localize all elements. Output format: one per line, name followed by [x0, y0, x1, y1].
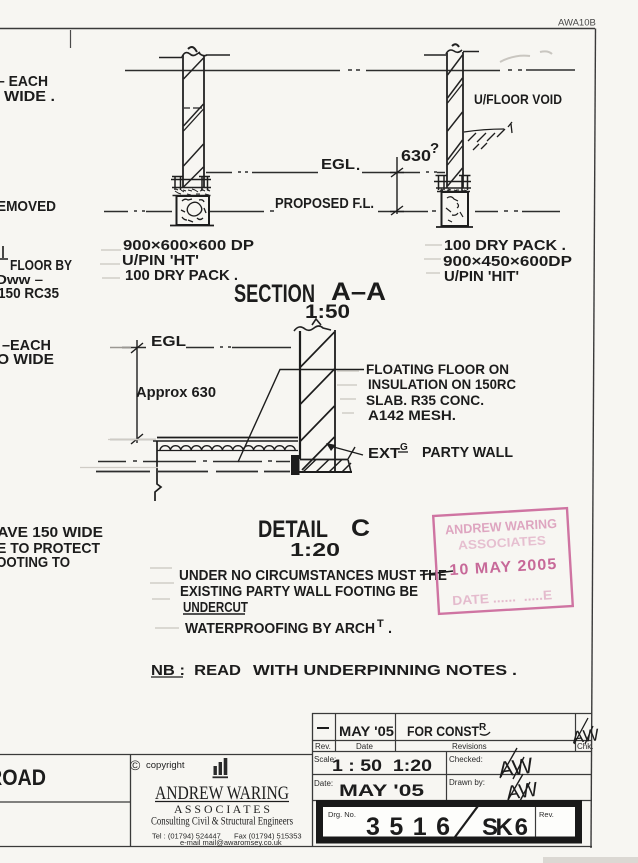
svg-text:R: R: [479, 722, 487, 733]
svg-text:O WIDE: O WIDE: [0, 351, 54, 368]
svg-text:U/PIN 'HIT': U/PIN 'HIT': [444, 268, 519, 285]
svg-text:100 DRY PACK .: 100 DRY PACK .: [444, 237, 566, 254]
svg-text:FOOTING TO: FOOTING TO: [0, 554, 70, 571]
svg-text:EXT: EXT: [368, 445, 400, 462]
svg-text:.: .: [388, 621, 392, 637]
svg-text:Revisions: Revisions: [452, 742, 487, 751]
svg-text:EMOVED: EMOVED: [0, 198, 56, 215]
svg-text:EXISTING PARTY WALL FOOTING BE: EXISTING PARTY WALL FOOTING BE: [180, 584, 418, 600]
svg-text:copyright: copyright: [146, 760, 185, 771]
svg-text:INSULATION ON 150RC: INSULATION ON 150RC: [368, 376, 516, 392]
svg-text:UNDER NO CIRCUMSTANCES MUST TH: UNDER NO CIRCUMSTANCES MUST THE: [179, 568, 447, 584]
svg-text:C: C: [351, 515, 370, 542]
svg-text:AW: AW: [497, 753, 535, 783]
svg-text:Chk.: Chk.: [577, 742, 593, 751]
svg-text:Consulting Civil & Structural: Consulting Civil & Structural Engineers: [151, 814, 293, 828]
svg-text:©: ©: [130, 757, 141, 773]
svg-text:100 DRY PACK .: 100 DRY PACK .: [125, 267, 238, 284]
svg-text:1:20: 1:20: [290, 540, 340, 560]
svg-text:Drawn by:: Drawn by:: [449, 778, 485, 787]
svg-text:ANDREW WARING: ANDREW WARING: [155, 783, 289, 804]
svg-text:Checked:: Checked:: [449, 755, 483, 764]
svg-text:1:50: 1:50: [305, 302, 350, 323]
svg-text:e-mail mail@awaromsey.co.uk: e-mail mail@awaromsey.co.uk: [180, 838, 282, 847]
svg-text:PARTY WALL: PARTY WALL: [422, 444, 513, 461]
svg-text:MAY '05: MAY '05: [339, 723, 394, 739]
svg-text:1 : 50 1:20: 1 : 50 1:20: [332, 756, 432, 775]
svg-text:ROAD: ROAD: [0, 765, 46, 790]
svg-text:SK 6: SK 6: [482, 814, 528, 841]
svg-text:?: ?: [430, 140, 439, 157]
svg-text:Rev.: Rev.: [315, 742, 331, 751]
svg-text:Rev.: Rev.: [539, 810, 554, 819]
svg-text:ASSOCIATES: ASSOCIATES: [458, 533, 547, 552]
svg-text:150 RC35: 150 RC35: [0, 285, 59, 302]
svg-text:EGL: EGL: [151, 333, 186, 350]
svg-text:A142 MESH.: A142 MESH.: [368, 407, 456, 423]
svg-text:DETAIL: DETAIL: [258, 516, 328, 543]
svg-text:AWA10B: AWA10B: [558, 18, 596, 29]
svg-text:T: T: [377, 618, 384, 630]
svg-text:10 MAY 2005: 10 MAY 2005: [449, 556, 558, 579]
svg-text:630: 630: [401, 148, 431, 165]
svg-text:PROPOSED F.L.: PROPOSED F.L.: [275, 195, 374, 212]
svg-text:Date: Date: [356, 742, 373, 751]
svg-text:SECTION: SECTION: [234, 280, 315, 308]
svg-text:SLAB. R35 CONC.: SLAB. R35 CONC.: [366, 392, 484, 408]
svg-text:HAVE 150 WIDE: HAVE 150 WIDE: [0, 524, 103, 541]
svg-text:EGL: EGL: [321, 156, 355, 173]
svg-text:WIDE .: WIDE .: [4, 88, 55, 105]
svg-text:.: .: [356, 157, 360, 174]
svg-text:WITH UNDERPINNING NOTES .: WITH UNDERPINNING NOTES .: [253, 662, 517, 679]
svg-text:DATE ...... .....E: DATE ...... .....E: [452, 587, 553, 608]
svg-text:FOR CONST: FOR CONST: [407, 723, 479, 739]
svg-text:FLOATING FLOOR ON: FLOATING FLOOR ON: [366, 361, 509, 377]
svg-text:WATERPROOFING BY ARCH: WATERPROOFING BY ARCH: [185, 621, 375, 637]
svg-text:MAY '05: MAY '05: [339, 781, 424, 800]
svg-text:U/FLOOR VOID: U/FLOOR VOID: [474, 91, 562, 107]
svg-text:Date:: Date:: [314, 779, 333, 788]
svg-text:Approx 630: Approx 630: [136, 384, 216, 401]
svg-text:Drg. No.: Drg. No.: [328, 810, 356, 819]
